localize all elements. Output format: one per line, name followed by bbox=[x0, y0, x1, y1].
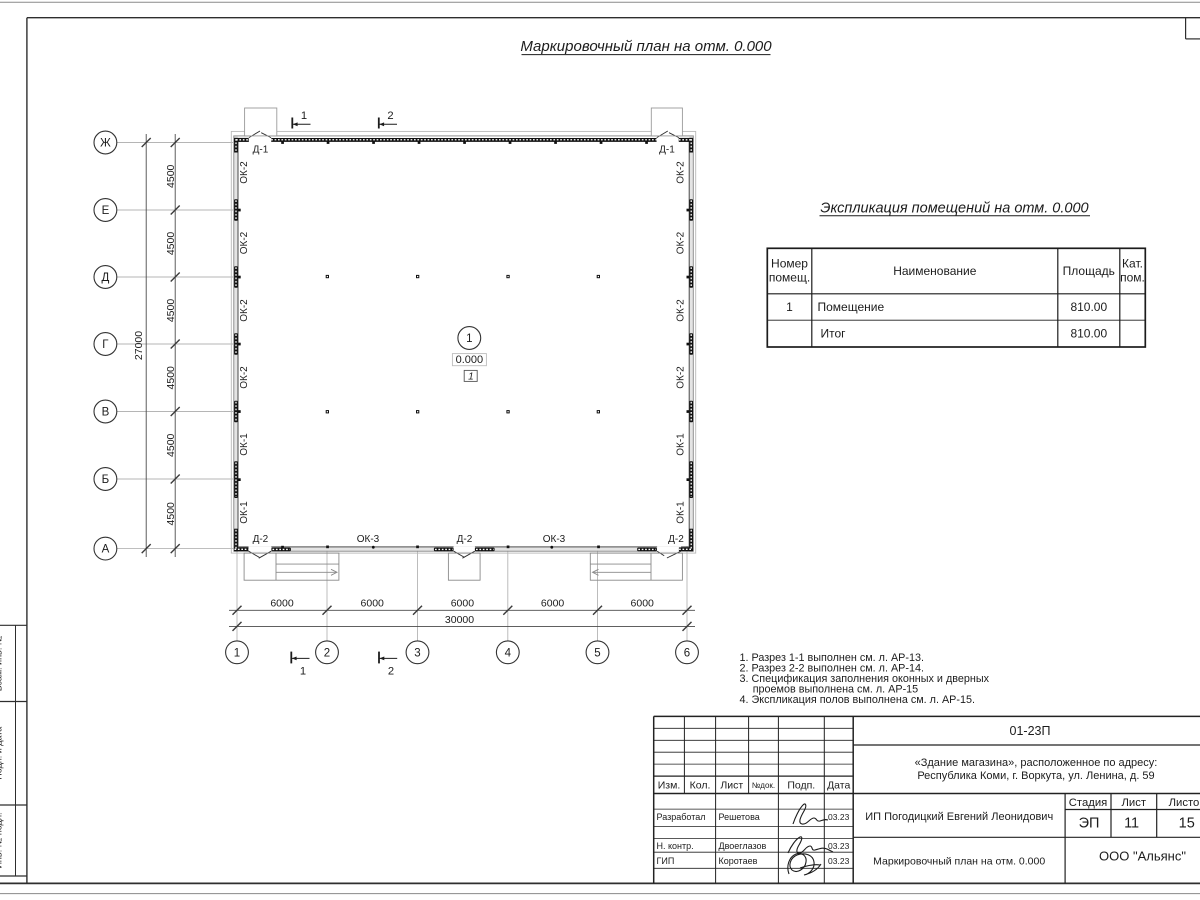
svg-text:810.00: 810.00 bbox=[1070, 300, 1107, 314]
svg-text:2: 2 bbox=[387, 110, 393, 122]
svg-text:27000: 27000 bbox=[133, 331, 145, 360]
svg-text:Изм.: Изм. bbox=[658, 780, 681, 792]
svg-text:Республика Коми, г. Воркута, у: Республика Коми, г. Воркута, ул. Ленина,… bbox=[917, 770, 1154, 782]
svg-text:Кат.: Кат. bbox=[1122, 257, 1143, 271]
svg-text:Д: Д bbox=[102, 272, 110, 284]
svg-text:Решетова: Решетова bbox=[719, 812, 760, 822]
svg-text:Коротаев: Коротаев bbox=[719, 856, 758, 866]
svg-text:ОК-2: ОК-2 bbox=[239, 161, 250, 184]
svg-text:ОК-3: ОК-3 bbox=[543, 534, 566, 545]
svg-text:4500: 4500 bbox=[165, 232, 177, 256]
svg-text:Маркировочный план на отм. 0.0: Маркировочный план на отм. 0.000 bbox=[520, 38, 772, 55]
svg-text:4500: 4500 bbox=[165, 299, 177, 323]
svg-text:2: 2 bbox=[324, 647, 330, 659]
svg-text:Двоеглазов: Двоеглазов bbox=[719, 841, 767, 851]
svg-text:15: 15 bbox=[1179, 816, 1195, 832]
svg-text:Ж: Ж bbox=[100, 138, 111, 150]
svg-text:Е: Е bbox=[102, 205, 110, 217]
svg-text:ОК-2: ОК-2 bbox=[676, 161, 687, 184]
svg-text:пом.: пом. bbox=[1120, 271, 1145, 285]
svg-text:ОК-1: ОК-1 bbox=[239, 433, 250, 456]
svg-text:Д-2: Д-2 bbox=[457, 534, 473, 545]
svg-text:ОК-1: ОК-1 bbox=[676, 433, 687, 456]
svg-text:1: 1 bbox=[300, 666, 306, 678]
svg-text:4. Экспликация полов выполнена: 4. Экспликация полов выполнена см. л. АР… bbox=[740, 694, 975, 706]
svg-text:Маркировочный план на отм. 0.0: Маркировочный план на отм. 0.000 bbox=[873, 855, 1045, 867]
svg-text:Г: Г bbox=[102, 339, 109, 351]
svg-text:1: 1 bbox=[466, 333, 472, 345]
svg-text:1: 1 bbox=[301, 110, 307, 122]
svg-text:6000: 6000 bbox=[451, 598, 475, 610]
svg-text:Помещение: Помещение bbox=[818, 300, 885, 314]
svg-text:03.23: 03.23 bbox=[828, 812, 850, 822]
svg-text:ООО "Альянс": ООО "Альянс" bbox=[1099, 849, 1186, 864]
svg-text:ОК-2: ОК-2 bbox=[676, 366, 687, 389]
svg-text:Экспликация помещений на отм.: Экспликация помещений на отм. 0.000 bbox=[820, 200, 1088, 216]
svg-text:Итог: Итог bbox=[821, 327, 847, 341]
svg-text:1: 1 bbox=[786, 300, 793, 314]
svg-text:Наименование: Наименование bbox=[893, 264, 977, 278]
svg-text:Дата: Дата bbox=[827, 780, 850, 792]
svg-text:03.23: 03.23 bbox=[828, 841, 850, 851]
svg-text:Листов: Листов bbox=[1169, 797, 1200, 809]
svg-text:Д-2: Д-2 bbox=[668, 534, 684, 545]
svg-text:1: 1 bbox=[468, 371, 474, 382]
svg-text:4500: 4500 bbox=[165, 164, 177, 188]
svg-text:1: 1 bbox=[234, 647, 240, 659]
svg-text:Н. контр.: Н. контр. bbox=[657, 841, 694, 851]
svg-text:ЭП: ЭП bbox=[1079, 816, 1100, 832]
svg-text:Подп. и дата: Подп. и дата bbox=[0, 727, 4, 780]
svg-text:Разработал: Разработал bbox=[657, 812, 706, 822]
svg-text:Стадия: Стадия bbox=[1069, 797, 1108, 809]
svg-text:11: 11 bbox=[1124, 816, 1139, 832]
svg-text:6000: 6000 bbox=[270, 598, 294, 610]
svg-text:«Здание магазина», расположенн: «Здание магазина», расположенное по адре… bbox=[915, 757, 1158, 769]
svg-text:Лист: Лист bbox=[1122, 797, 1147, 809]
svg-text:Д-1: Д-1 bbox=[253, 144, 269, 155]
svg-text:ОК-2: ОК-2 bbox=[239, 231, 250, 254]
svg-text:Д-2: Д-2 bbox=[253, 534, 269, 545]
svg-text:4: 4 bbox=[505, 647, 512, 659]
svg-text:ГИП: ГИП bbox=[657, 856, 675, 866]
svg-text:3: 3 bbox=[414, 647, 420, 659]
svg-text:4500: 4500 bbox=[165, 502, 177, 526]
svg-text:4500: 4500 bbox=[165, 433, 177, 457]
svg-text:Инв. № подл.: Инв. № подл. bbox=[0, 812, 4, 868]
svg-text:№док.: №док. bbox=[752, 781, 775, 790]
svg-text:Б: Б bbox=[102, 474, 110, 486]
svg-text:4500: 4500 bbox=[165, 366, 177, 390]
svg-text:ОК-2: ОК-2 bbox=[239, 299, 250, 322]
svg-text:03.23: 03.23 bbox=[828, 856, 850, 866]
svg-text:ОК-3: ОК-3 bbox=[357, 534, 380, 545]
svg-text:6000: 6000 bbox=[541, 598, 565, 610]
svg-text:ОК-2: ОК-2 bbox=[676, 299, 687, 322]
svg-text:Площадь: Площадь bbox=[1063, 264, 1115, 278]
svg-text:5: 5 bbox=[594, 647, 600, 659]
svg-text:А: А bbox=[102, 544, 110, 556]
svg-text:ОК-1: ОК-1 bbox=[239, 501, 250, 524]
svg-text:ОК-2: ОК-2 bbox=[676, 231, 687, 254]
svg-text:6: 6 bbox=[684, 647, 690, 659]
svg-text:ОК-2: ОК-2 bbox=[239, 366, 250, 389]
svg-text:2: 2 bbox=[388, 666, 394, 678]
svg-text:810.00: 810.00 bbox=[1070, 327, 1107, 341]
svg-text:Номер: Номер bbox=[771, 257, 808, 271]
svg-text:помещ.: помещ. bbox=[769, 271, 810, 285]
svg-text:Д-1: Д-1 bbox=[659, 144, 675, 155]
svg-text:Взам. инв. №: Взам. инв. № bbox=[0, 635, 4, 691]
svg-text:ОК-1: ОК-1 bbox=[676, 501, 687, 524]
svg-text:Кол.: Кол. bbox=[690, 780, 711, 792]
svg-text:6000: 6000 bbox=[631, 598, 655, 610]
svg-text:0.000: 0.000 bbox=[456, 354, 484, 366]
svg-text:01-23П: 01-23П bbox=[1010, 724, 1051, 738]
svg-text:Подп.: Подп. bbox=[787, 780, 815, 792]
svg-text:ИП Погодицкий Евгений Леонидов: ИП Погодицкий Евгений Леонидович bbox=[865, 811, 1053, 823]
svg-text:6000: 6000 bbox=[361, 598, 385, 610]
svg-text:30000: 30000 bbox=[445, 614, 474, 626]
svg-text:В: В bbox=[102, 407, 110, 419]
svg-text:Лист: Лист bbox=[720, 780, 743, 792]
